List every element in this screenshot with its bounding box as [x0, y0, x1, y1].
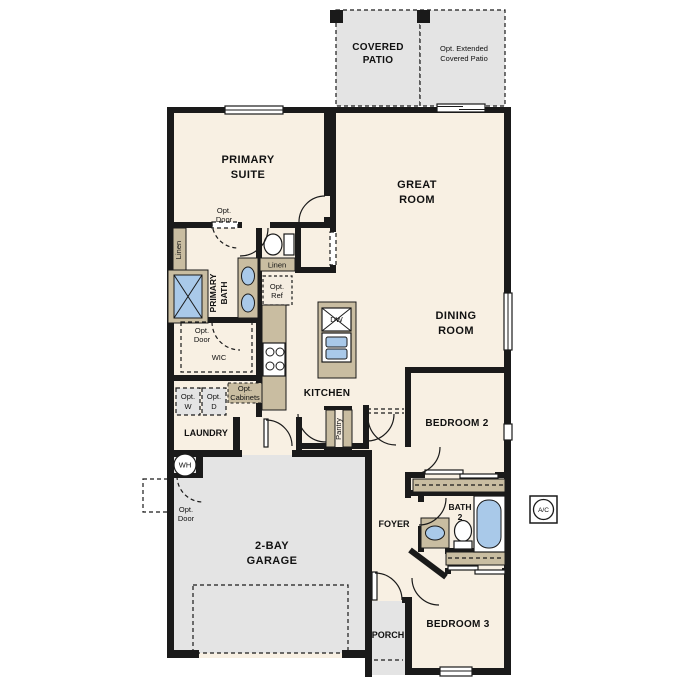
wall-segment	[167, 375, 262, 381]
opt-washer-label: Opt.	[181, 392, 195, 401]
great-room-label: GREAT	[397, 179, 437, 191]
bath2-label: BATH	[449, 502, 472, 512]
linen-label: Linen	[174, 241, 183, 259]
opt-door-label: Opt.	[195, 326, 209, 335]
opt-door-label: Opt.	[179, 505, 193, 514]
opt-washer-label: W	[184, 402, 192, 411]
sink-basin	[326, 349, 347, 359]
dishwasher-label: DW	[330, 315, 343, 324]
covered-patio-label: COVERED	[352, 42, 404, 53]
toilet-tank	[454, 541, 472, 549]
closet-shelf	[446, 552, 505, 565]
covered-patio-label: PATIO	[363, 55, 394, 66]
wall-segment	[167, 222, 212, 228]
pantry-shelf	[343, 410, 352, 447]
window	[504, 424, 512, 440]
primary-suite-label: SUITE	[231, 169, 265, 181]
sliding-closet-door	[448, 566, 478, 570]
patio-post	[417, 10, 430, 23]
garage-label: 2-BAY	[255, 540, 289, 552]
sink-basin	[326, 337, 347, 347]
wall-segment	[300, 267, 336, 273]
toilet	[264, 234, 294, 255]
opt-door-label: Door	[216, 215, 233, 224]
porch-label: PORCH	[372, 630, 405, 640]
wall-segment	[300, 443, 326, 449]
floor-plan-canvas: A/C COVERED PATIO Opt. Extended Covered …	[0, 0, 687, 687]
wall-segment	[324, 113, 330, 196]
ac-label: A/C	[538, 507, 549, 514]
opt-door-label: Door	[178, 514, 195, 523]
wall-segment	[270, 222, 330, 228]
garage-label: GARAGE	[247, 555, 298, 567]
sliding-closet-door	[475, 570, 505, 574]
linen-label: Linen	[268, 261, 286, 270]
bath2-label: 2	[458, 512, 463, 522]
wall-segment	[295, 228, 301, 273]
dining-room-label: DINING	[436, 310, 477, 322]
kitchen-label: KITCHEN	[304, 388, 351, 399]
opt-cabinets-label: Cabinets	[230, 393, 260, 402]
wall-segment	[238, 222, 242, 228]
wall-segment	[324, 447, 352, 451]
wall-segment	[405, 367, 511, 373]
toilet-bowl	[455, 521, 472, 542]
opt-dryer-label: Opt.	[207, 392, 221, 401]
garage-floor	[172, 455, 365, 653]
wall-segment	[365, 450, 372, 677]
opt-dryer-label: D	[211, 402, 217, 411]
great-room-label: ROOM	[399, 194, 435, 206]
wall-segment	[330, 113, 336, 232]
opt-cabinets-label: Opt.	[238, 384, 252, 393]
opt-opening	[330, 232, 336, 265]
sliding-closet-door	[460, 474, 498, 478]
extended-patio-label: Covered Patio	[440, 54, 488, 63]
toilet-tank	[284, 234, 294, 255]
patio-post	[330, 10, 343, 23]
sliding-closet-door	[425, 470, 463, 474]
wall-segment	[405, 367, 411, 447]
wall-segment	[324, 217, 330, 228]
tub-basin	[477, 500, 501, 548]
primary-bath-label: PRIMARY	[208, 273, 218, 312]
ac-unit: A/C	[530, 496, 557, 523]
water-heater-label: WH	[179, 461, 192, 470]
vanity-sink	[242, 294, 255, 312]
wall-segment	[405, 597, 412, 675]
bath2-sink	[426, 526, 445, 540]
wall-segment	[167, 107, 174, 658]
primary-bath-label: BATH	[219, 282, 229, 305]
laundry-label: LAUNDRY	[184, 428, 228, 438]
vanity-sink	[242, 267, 255, 285]
extended-patio-label: Opt. Extended	[440, 44, 488, 53]
wall-segment	[167, 650, 199, 658]
foyer-label: FOYER	[378, 519, 410, 529]
wall-segment	[324, 406, 352, 410]
bedroom3-label: BEDROOM 3	[426, 619, 489, 630]
bathtub	[474, 496, 505, 552]
wall-segment	[292, 450, 372, 457]
opt-service-door-stoop	[143, 479, 170, 512]
wall-segment	[233, 417, 240, 450]
primary-suite-label: PRIMARY	[221, 154, 274, 166]
opt-ref-label: Ref	[271, 291, 284, 300]
floor-plan-drawing: A/C COVERED PATIO Opt. Extended Covered …	[0, 0, 687, 687]
toilet	[454, 521, 472, 550]
door-leaf	[264, 419, 268, 447]
opt-door-label: Door	[194, 335, 211, 344]
wall-segment	[418, 496, 424, 502]
wall-segment	[504, 107, 511, 675]
wall-segment	[411, 472, 425, 478]
bedroom2-label: BEDROOM 2	[425, 418, 488, 429]
dining-room-label: ROOM	[438, 325, 474, 337]
front-door-leaf	[372, 572, 377, 600]
wic-label: WIC	[212, 353, 227, 362]
cooktop	[263, 343, 285, 376]
sliding-glass-door	[437, 104, 485, 112]
kitchen-sink	[322, 333, 351, 362]
opt-door-label: Opt.	[217, 206, 231, 215]
opt-ref-label: Opt.	[270, 282, 284, 291]
pantry-label: Pantry	[334, 418, 343, 440]
